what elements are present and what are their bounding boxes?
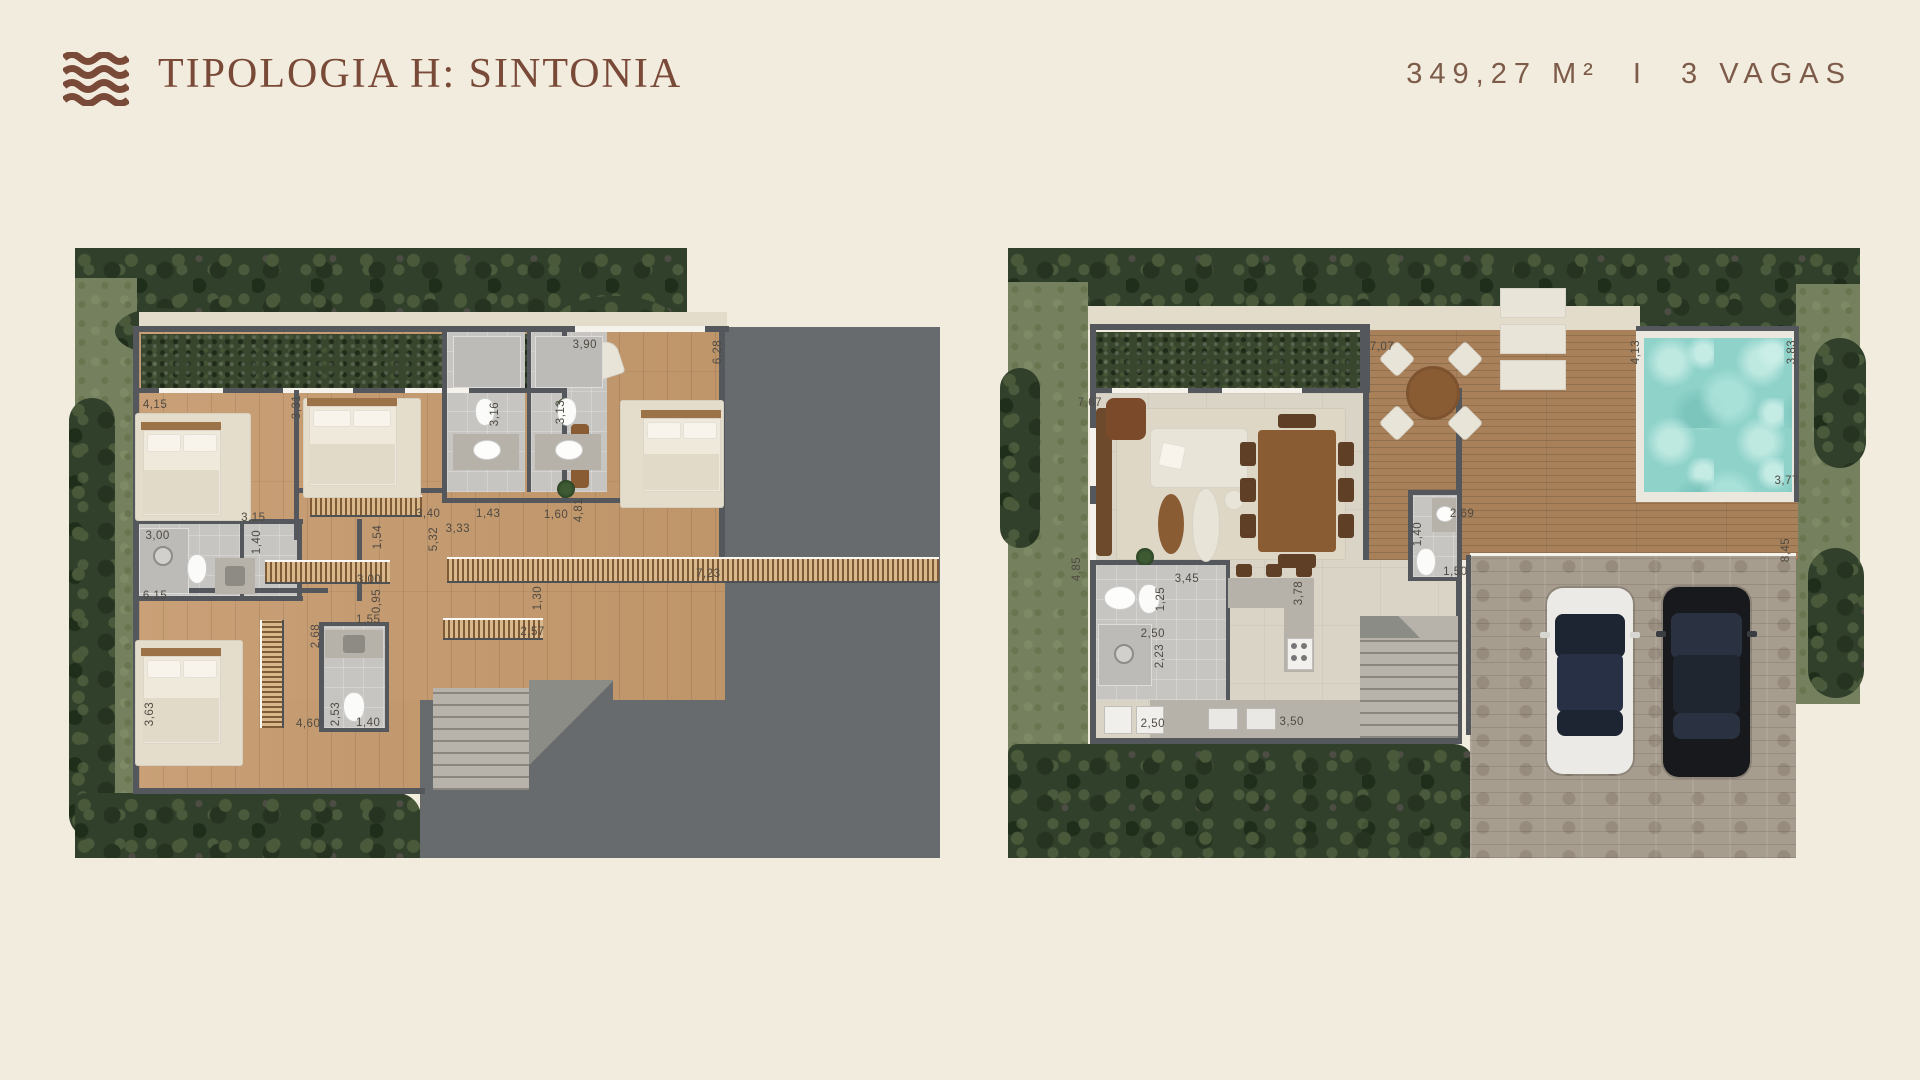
bed-pillow [353,410,391,427]
dining-chair [1278,414,1316,428]
bed-pillow [683,422,717,439]
bar-stool [1296,564,1312,577]
sink [555,440,583,460]
dimension-label: 2,50 [1141,718,1165,730]
window [1112,388,1188,393]
dimension-label: 4,81 [573,498,585,522]
garden-bush [1808,548,1864,698]
bed-pillow [313,410,351,427]
dimension-label: 3,90 [573,339,597,351]
shower [453,336,521,388]
dimension-label: 1,54 [372,525,384,549]
car-mirror [1656,631,1666,637]
dimension-label: 1,55 [356,614,380,626]
dimension-label: 7,07 [1370,341,1394,353]
armchair [1106,398,1146,440]
bed-headboard [307,398,397,406]
wall [1466,555,1471,735]
car-mirror [1540,632,1550,638]
roof-void [725,327,940,858]
car-windshield [1671,613,1742,659]
toilet [187,554,207,584]
dimension-label: 2,68 [310,624,322,648]
car-white [1547,588,1633,774]
sink [343,635,365,653]
dimension-label: 4,13 [1630,339,1642,363]
dimension-label: 3,00 [145,530,169,542]
wall [1636,326,1798,331]
bed-blanket [143,470,219,514]
dining-table [1258,430,1336,552]
plant [1136,548,1154,566]
car-mirror [1747,631,1757,637]
dimension-label: 5,32 [428,527,440,551]
bed-pillow [147,434,181,452]
dining-chair [1338,442,1354,466]
staircase [1360,638,1458,738]
dimension-label: 3,63 [144,702,156,726]
burner [1291,643,1297,649]
wall [133,788,425,794]
dimension-label: 0,95 [371,589,383,613]
toilet [1416,548,1436,576]
dimension-label: 8,45 [1780,538,1792,562]
wall [1363,390,1369,560]
kitchen-sink [1208,708,1238,730]
bed-blanket [643,454,719,490]
bed-pillow [183,660,217,678]
dimension-label: 1,40 [1412,522,1424,546]
waves-logo-icon [63,52,129,106]
plant [557,480,575,498]
dimension-label: 2,23 [1154,644,1166,668]
bed-pillow [147,660,181,678]
page-title: TIPOLOGIA H: SINTONIA [158,50,682,98]
dimension-label: 1,30 [532,586,544,610]
bed-pillow [183,434,217,452]
washer [1104,706,1132,734]
cooktop [1287,638,1313,670]
dimension-label: 1,50 [1443,566,1467,578]
specs-divider: I [1633,58,1648,90]
bar-stool [1266,564,1282,577]
wall [1090,738,1462,744]
sofa-pillow [1158,442,1186,470]
bed-blanket [309,444,395,484]
dimension-label: 3,13 [555,400,567,424]
unit-specs: 349,27 M² I 3 VAGAS [1406,58,1852,91]
wall [1360,326,1370,392]
dimension-label: 2,69 [1450,508,1474,520]
sink [225,566,245,586]
garden-foliage-bottom [75,793,421,858]
deck-bench [1500,324,1566,354]
dimension-label: 3,50 [1280,716,1304,728]
bed-headboard [141,422,221,430]
dimension-label: 4,60 [296,718,320,730]
closet-louver [310,495,422,517]
garden-foliage-left [69,398,115,838]
window [405,388,469,393]
dining-chair [1240,478,1256,502]
sink [473,440,501,460]
kitchen-sink [1246,708,1276,730]
sink [1104,586,1136,610]
dining-chair [1338,514,1354,538]
dimension-label: 3,78 [1293,581,1305,605]
car-black [1663,587,1750,777]
dimension-label: 3,16 [489,402,501,426]
staircase [433,688,529,790]
pergola-louver [447,557,939,583]
dimension-label: 6,28 [712,339,724,363]
bed-pillow [647,422,681,439]
closet-louver-vertical [260,620,284,728]
dimension-label: 3,45 [1175,573,1199,585]
dimension-label: 3,31 [291,395,303,419]
dimension-label: 6,15 [143,590,167,602]
dimension-label: 3,77 [1775,475,1799,487]
dining-chair [1240,442,1256,466]
car-rear-window [1673,713,1740,739]
typology-poster: { "header": { "title": "TIPOLOGIA H: SIN… [0,0,1920,1080]
stair-wall [1360,616,1458,638]
deck-bench [1500,360,1566,390]
dimension-label: 4,15 [143,399,167,411]
dimension-label: 1,40 [356,717,380,729]
wall [1090,324,1370,330]
parking-value: 3 VAGAS [1681,58,1852,90]
car-mirror [1630,632,1640,638]
dining-chair [1240,514,1256,538]
burner [1301,655,1307,661]
dimension-label: 2,50 [1141,628,1165,640]
window [1222,388,1302,393]
garden-foliage-bottom [1008,744,1474,858]
dimension-label: 3,00 [357,574,381,586]
bed-headboard [141,648,221,656]
dimension-label: 3,15 [241,512,265,524]
window [159,388,223,393]
dimension-label: 4,85 [1071,557,1083,581]
dimension-label: 3,83 [1786,339,1798,363]
car-rear-window [1557,710,1623,736]
dimension-label: 2,57 [520,626,544,638]
dimension-label: 1,43 [476,508,500,520]
hedge-planter [1092,332,1364,390]
burner [1291,655,1297,661]
car-windshield [1555,614,1625,658]
car-roof [1557,654,1623,712]
coffee-table [1192,488,1220,562]
shower-drain [1114,644,1134,664]
dimension-label: 3,40 [416,508,440,520]
dimension-label: 7,67 [1078,397,1102,409]
dimension-label: 7,23 [696,568,720,580]
bed-headboard [641,410,721,418]
wall [527,326,531,492]
garden-bush [1814,338,1866,468]
deck-round-table [1406,366,1460,420]
coffee-table [1158,494,1184,554]
pool [1644,338,1792,492]
bar-stool [1236,564,1252,577]
car-roof [1673,655,1740,713]
garage-curb [1470,553,1796,556]
dimension-label: 1,25 [1155,587,1167,611]
dimension-label: 2,53 [330,702,342,726]
dimension-label: 3,33 [446,523,470,535]
dimension-label: 1,40 [251,530,263,554]
burner [1301,643,1307,649]
floor-plan-ground: 7,677,074,133,833,778,454,853,451,252,50… [1008,248,1860,858]
window [575,326,705,332]
deck-bench [1500,288,1566,318]
area-value: 349,27 M² [1406,58,1600,90]
dimension-label: 1,60 [544,509,568,521]
wall [385,622,389,732]
stair-landing [529,680,613,766]
dining-chair [1338,478,1354,502]
shower-drain [153,546,173,566]
floor-plan-upper: 4,153,313,906,283,163,133,151,403,003,40… [75,248,945,858]
garden-bush [1000,368,1040,548]
wall [442,326,447,498]
